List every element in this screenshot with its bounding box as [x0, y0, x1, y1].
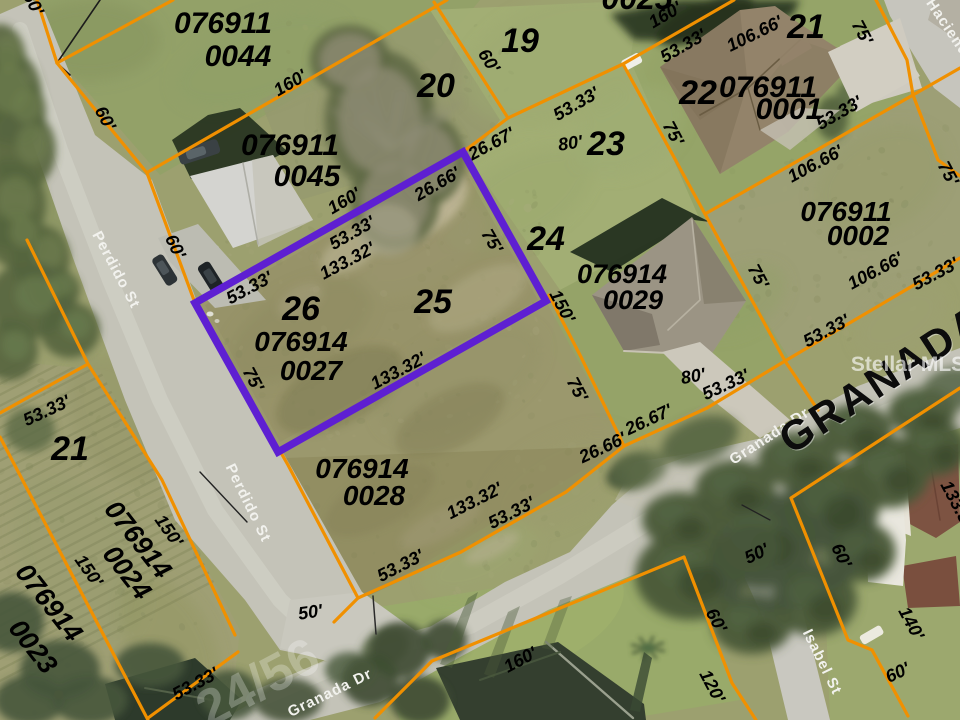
svg-text:0045: 0045 — [274, 160, 342, 193]
svg-text:076911: 076911 — [174, 7, 272, 40]
svg-text:076914: 076914 — [254, 326, 348, 357]
svg-text:24: 24 — [526, 220, 565, 258]
svg-text:80': 80' — [557, 131, 585, 154]
svg-text:076911: 076911 — [241, 129, 339, 162]
svg-text:22: 22 — [678, 74, 717, 112]
svg-text:0028: 0028 — [343, 480, 406, 511]
svg-text:0029: 0029 — [603, 285, 663, 315]
svg-text:0044: 0044 — [205, 40, 272, 73]
svg-text:Stellar MLS: Stellar MLS — [851, 353, 960, 376]
svg-text:25: 25 — [413, 283, 453, 321]
svg-text:0002: 0002 — [827, 220, 890, 251]
svg-text:23: 23 — [586, 125, 625, 163]
svg-text:0027: 0027 — [280, 355, 344, 386]
svg-text:19: 19 — [501, 22, 539, 60]
svg-text:50': 50' — [297, 600, 325, 623]
svg-text:26: 26 — [281, 290, 321, 328]
svg-text:20: 20 — [416, 67, 455, 105]
svg-text:0001: 0001 — [756, 93, 823, 126]
svg-text:21: 21 — [786, 8, 825, 46]
svg-text:21: 21 — [50, 430, 89, 468]
